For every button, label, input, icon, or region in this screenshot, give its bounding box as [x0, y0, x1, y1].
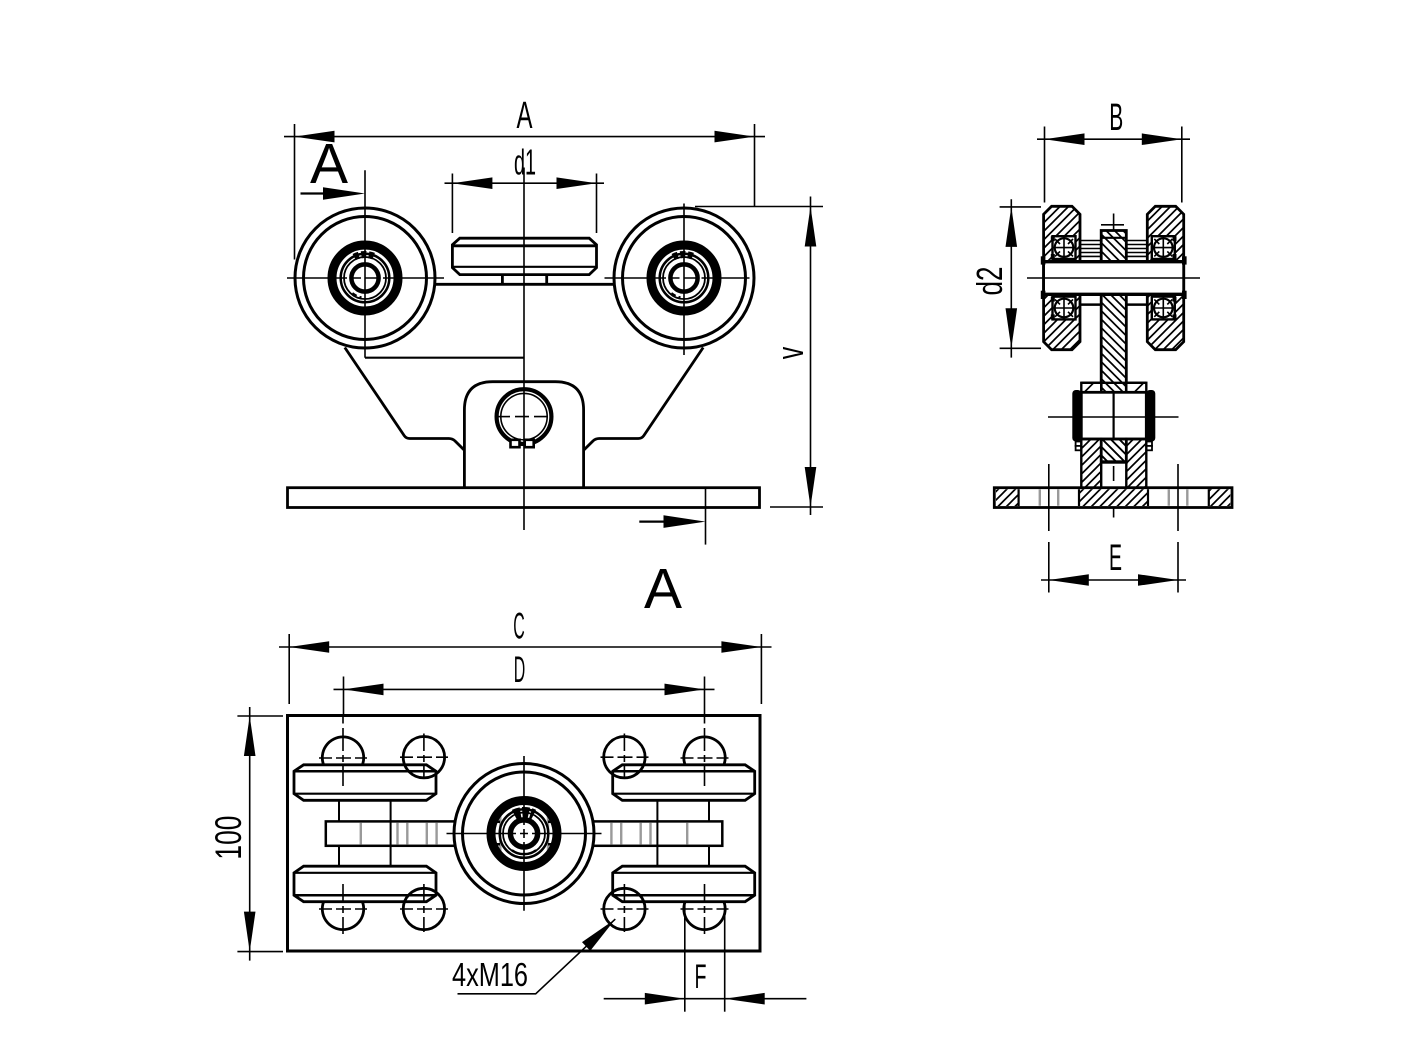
- svg-text:d1: d1: [514, 142, 536, 183]
- svg-text:100: 100: [208, 816, 249, 860]
- svg-text:E: E: [1109, 537, 1122, 578]
- svg-text:F: F: [695, 958, 707, 996]
- svg-text:D: D: [514, 649, 526, 690]
- svg-text:A: A: [310, 132, 348, 196]
- svg-text:A: A: [644, 557, 682, 621]
- svg-text:B: B: [1109, 97, 1123, 139]
- svg-text:4xM16: 4xM16: [452, 956, 528, 993]
- svg-text:d2: d2: [969, 267, 1010, 296]
- svg-text:C: C: [513, 606, 525, 647]
- svg-text:A: A: [517, 95, 533, 137]
- svg-text:v: v: [770, 347, 812, 360]
